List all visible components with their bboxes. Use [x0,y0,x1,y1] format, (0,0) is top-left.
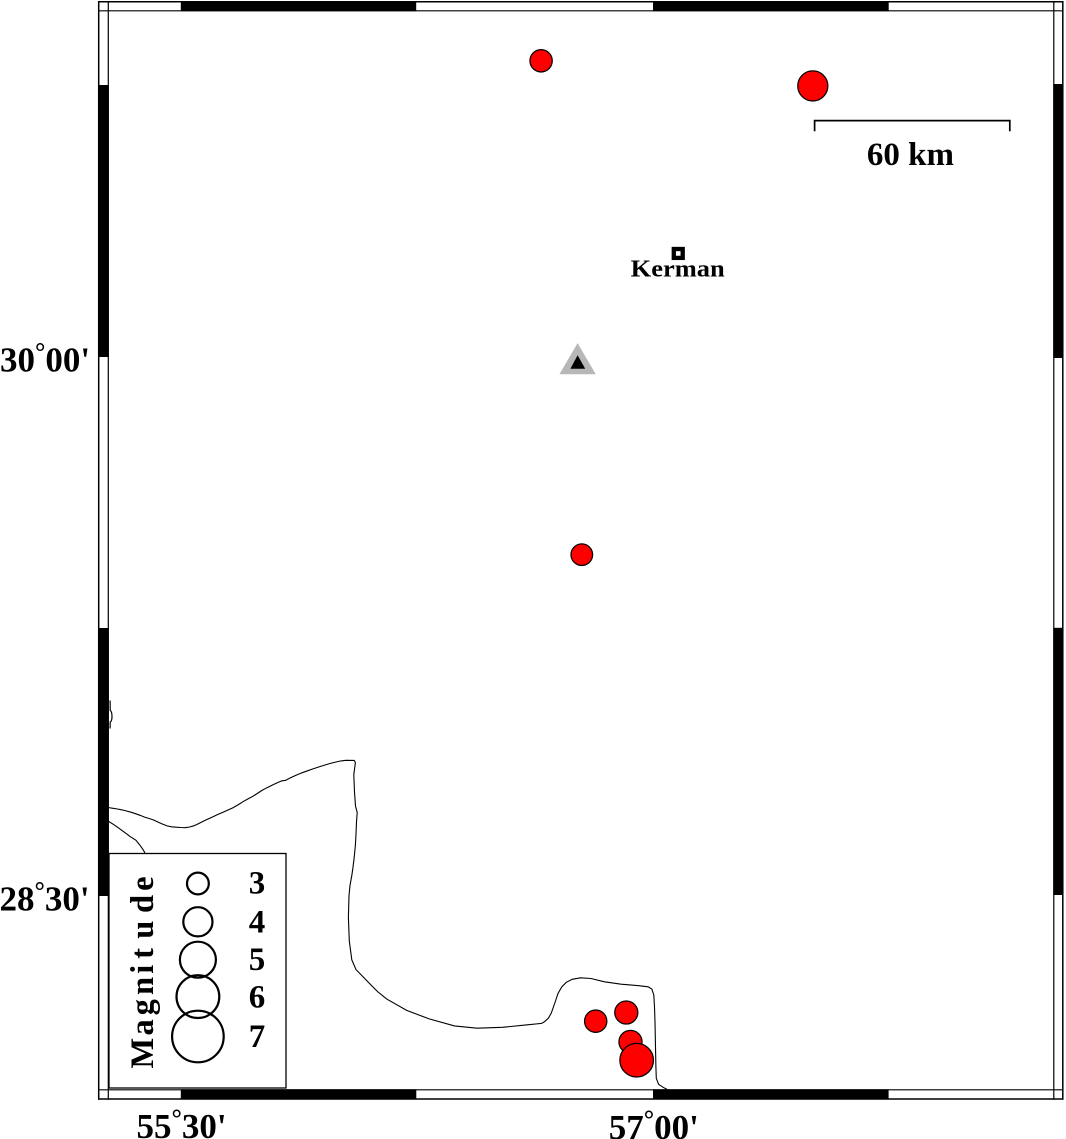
svg-text:28°30': 28°30' [0,877,90,919]
svg-text:e: e [125,876,161,890]
svg-text:5: 5 [249,942,266,978]
svg-text:57°00': 57°00' [609,1105,699,1139]
svg-text:i: i [125,965,161,974]
svg-text:n: n [125,977,161,995]
svg-text:g: g [125,999,161,1015]
svg-text:4: 4 [249,905,266,941]
svg-text:t: t [125,948,161,959]
svg-text:6: 6 [249,980,266,1016]
svg-text:M: M [125,1038,161,1069]
svg-text:60 km: 60 km [867,137,954,173]
svg-text:d: d [125,895,161,913]
svg-text:a: a [125,1019,161,1035]
svg-text:55°30': 55°30' [137,1104,227,1139]
svg-text:3: 3 [249,866,266,902]
svg-text:30°00': 30°00' [0,338,90,380]
svg-text:u: u [125,921,161,939]
svg-text:7: 7 [249,1019,266,1055]
svg-text:Kerman: Kerman [631,257,725,283]
